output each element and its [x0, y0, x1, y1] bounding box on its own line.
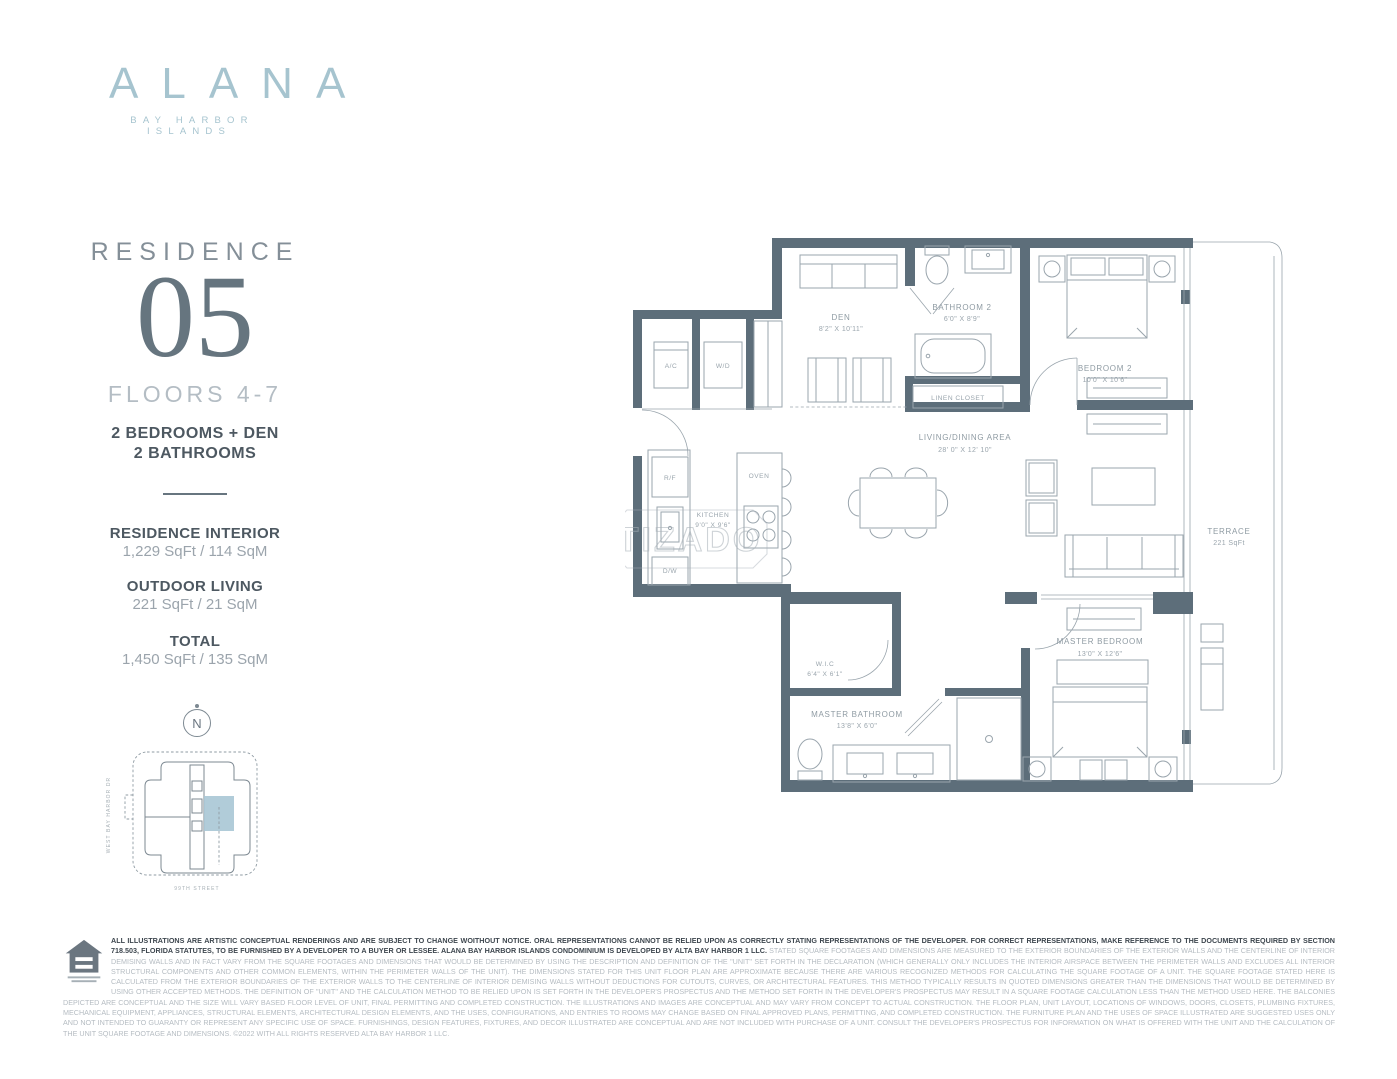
stool-icon — [782, 531, 791, 549]
room-label-terrace: TERRACE — [1207, 527, 1250, 536]
room-dims-kitchen: 9'0" X 9'6" — [695, 522, 731, 529]
brand-tagline: BAY HARBOR ISLANDS — [86, 115, 292, 137]
disclaimer-text: ALL ILLUSTRATIONS ARE ARTISTIC CONCEPTUA… — [63, 936, 1335, 1039]
room-dims-bedroom2: 10'0" X 10'6" — [1083, 377, 1128, 384]
master-dresser-icon — [1067, 608, 1141, 630]
compass-north-letter: N — [192, 716, 201, 731]
living-tv-console-icon — [1087, 414, 1167, 434]
stat-title-interior: RESIDENCE INTERIOR — [75, 525, 315, 542]
street-label-99th: 99TH STREET — [174, 886, 219, 892]
residence-floors: FLOORS 4-7 — [75, 381, 315, 408]
master-vanity-icon — [833, 745, 950, 782]
bathroom2-sink-icon — [965, 246, 1011, 273]
bedroom2-nightstands-icon — [1039, 256, 1175, 282]
label-ac: A/C — [665, 363, 678, 370]
master-toilet-icon — [798, 739, 822, 780]
room-dims-master-bath: 13'8" X 6'0" — [837, 723, 878, 730]
stat-value-total: 1,450 SqFt / 135 SqM — [75, 651, 315, 668]
residence-number: 05 — [75, 258, 315, 376]
stat-title-total: TOTAL — [75, 633, 315, 650]
watermark-text: TIZADO — [625, 521, 762, 559]
room-label-master-bath: MASTER BATHROOM — [811, 710, 903, 719]
stool-icon — [782, 469, 791, 487]
master-bed-icon — [1053, 660, 1148, 780]
room-label-living: LIVING/DINING AREA — [919, 433, 1012, 442]
brand-logo: ALANA BAY HARBOR ISLANDS — [86, 62, 292, 137]
footer-disclaimer: ALL ILLUSTRATIONS ARE ARTISTIC CONCEPTUA… — [63, 936, 1335, 1039]
kitchen-counter-icon — [648, 450, 690, 585]
room-dims-terrace: 221 SqFt — [1213, 540, 1245, 547]
brand-wordmark: ALANA — [86, 62, 292, 106]
key-plan-building-outline — [145, 762, 250, 873]
config-bathrooms: 2 BATHROOMS — [75, 445, 315, 463]
room-dims-wic: 6'4" X 6'1" — [807, 671, 843, 678]
label-oven: OVEN — [749, 473, 770, 480]
room-label-linen: LINEN CLOSET — [931, 395, 985, 402]
terrace-edge — [1193, 242, 1282, 784]
stat-title-outdoor: OUTDOOR LIVING — [75, 578, 315, 595]
divider-rule — [163, 493, 227, 495]
bathtub-icon — [915, 334, 991, 378]
bedroom2-door-arc — [1030, 358, 1077, 405]
stat-value-interior: 1,229 SqFt / 114 SqM — [75, 543, 315, 560]
stat-value-outdoor: 221 SqFt / 21 SqM — [75, 596, 315, 613]
disclaimer-light: STATED SQUARE FOOTAGES AND DIMENSIONS AR… — [63, 946, 1335, 1037]
room-label-master-bed: MASTER BEDROOM — [1057, 637, 1144, 646]
den-sofa-icon — [800, 255, 897, 288]
room-label-bathroom2: BATHROOM 2 — [932, 303, 991, 312]
wic-door-arc — [848, 640, 888, 680]
master-bath-door-leaf — [905, 699, 939, 733]
floor-plan: TIZADO DEN 8'2" X 10'11" BATHROOM 2 6'0"… — [625, 228, 1300, 813]
den-chairs-icon — [808, 358, 891, 402]
living-sofa-icon — [1065, 535, 1183, 577]
master-nightstands-icon — [1023, 757, 1177, 781]
north-compass-icon: N — [184, 704, 211, 737]
room-label-kitchen: KITCHEN — [697, 512, 729, 519]
entry-door-arc — [642, 410, 688, 456]
shower-icon — [957, 698, 1021, 780]
room-label-den: DEN — [832, 313, 851, 322]
street-label-west-bay-harbor: WEST BAY HARBOR DR — [106, 777, 112, 853]
shelf-unit-icon — [1026, 460, 1057, 536]
room-label-bedroom2: BEDROOM 2 — [1078, 364, 1132, 373]
room-dims-den: 8'2" X 10'11" — [819, 326, 863, 333]
config-bedrooms: 2 BEDROOMS + DEN — [75, 425, 315, 443]
coffee-table-icon — [1092, 468, 1155, 505]
hall-door-leaf — [910, 288, 931, 314]
terrace-lounger-icon — [1201, 624, 1223, 710]
bathroom2-toilet-icon — [925, 246, 949, 284]
dining-table-icon — [848, 468, 947, 538]
room-dims-master-bed: 13'0" X 12'6" — [1078, 651, 1123, 658]
stool-icon — [782, 498, 791, 516]
room-label-wic: W.I.C — [816, 661, 835, 668]
stool-icon — [782, 558, 791, 576]
den-closet-icon — [754, 321, 782, 407]
label-wd: W/D — [716, 363, 730, 370]
label-dw: D/W — [663, 568, 678, 575]
label-rf: R/F — [664, 475, 676, 482]
room-dims-bathroom2: 6'0" X 8'9" — [944, 316, 980, 323]
site-key-plan: N WEST BAY HARBOR DR 99TH STREET — [95, 695, 275, 905]
equal-housing-opportunity-icon — [63, 938, 105, 986]
bedroom2-bed-icon — [1067, 255, 1147, 338]
room-dims-living: 28' 0" X 12' 10" — [938, 447, 992, 454]
